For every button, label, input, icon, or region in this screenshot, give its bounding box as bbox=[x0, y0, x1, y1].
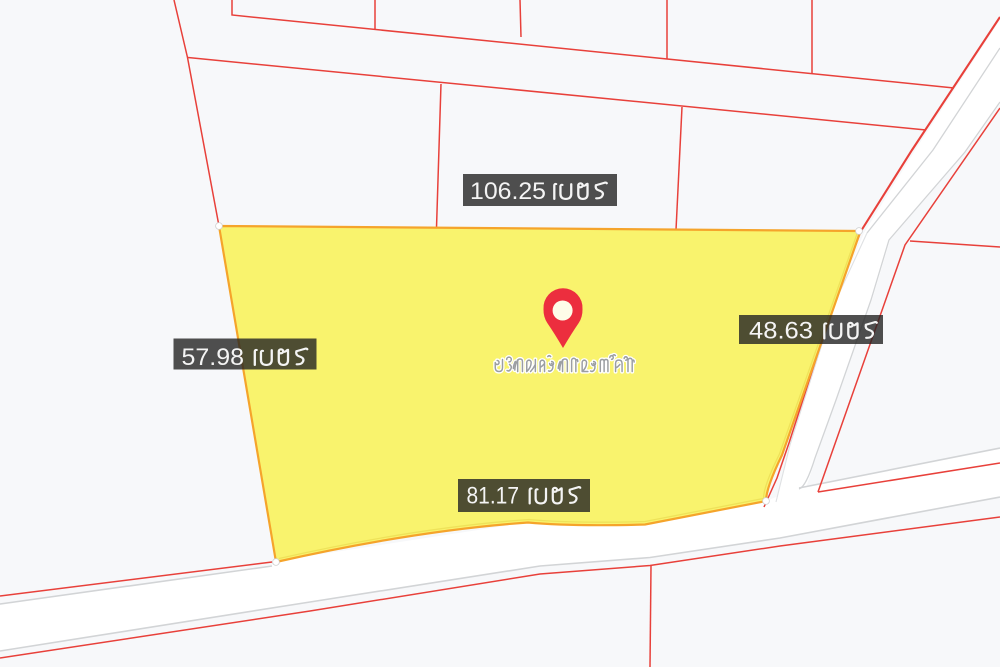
svg-text:57.98: 57.98 bbox=[182, 344, 245, 371]
svg-text:81.17: 81.17 bbox=[467, 483, 520, 510]
svg-text:48.63: 48.63 bbox=[749, 318, 813, 345]
svg-text:106.25: 106.25 bbox=[470, 178, 546, 205]
